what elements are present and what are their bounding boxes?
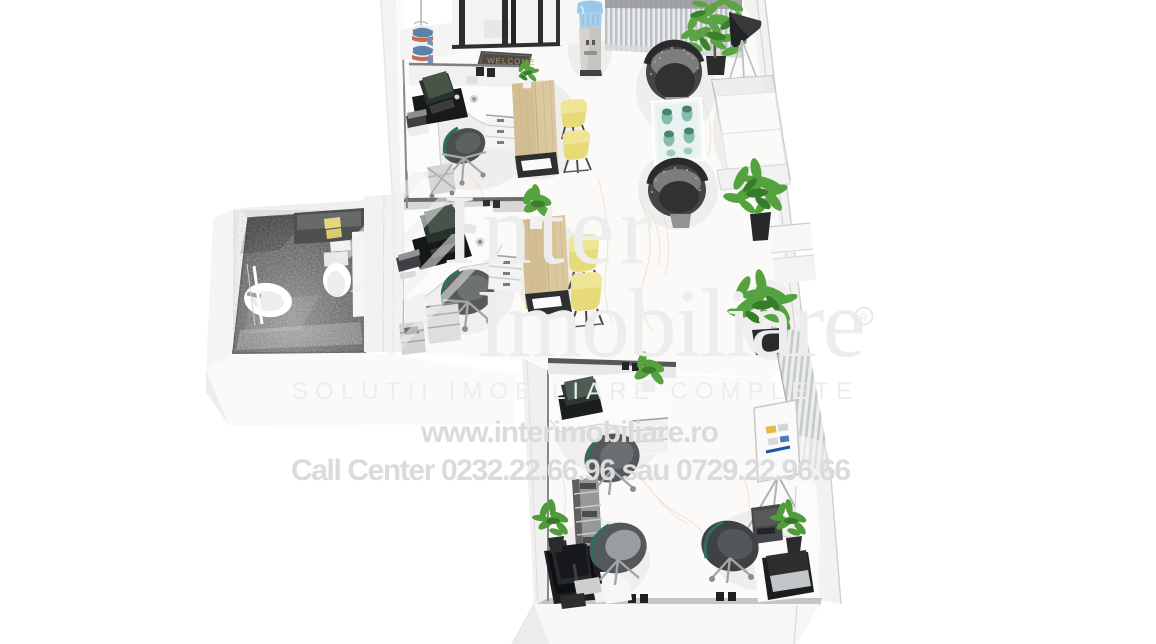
svg-text:Call Center 0232.22.66.96 sau: Call Center 0232.22.66.96 sau 0729.22.96… — [291, 454, 851, 487]
svg-text:Imobiliare: Imobiliare — [476, 270, 866, 378]
svg-text:R: R — [860, 312, 868, 324]
svg-text:SOLUTII IMOBILIARE COMPLETE: SOLUTII IMOBILIARE COMPLETE — [292, 378, 860, 405]
svg-text:Inter: Inter — [443, 174, 653, 285]
svg-text:www.interimobiliare.ro: www.interimobiliare.ro — [420, 416, 719, 449]
